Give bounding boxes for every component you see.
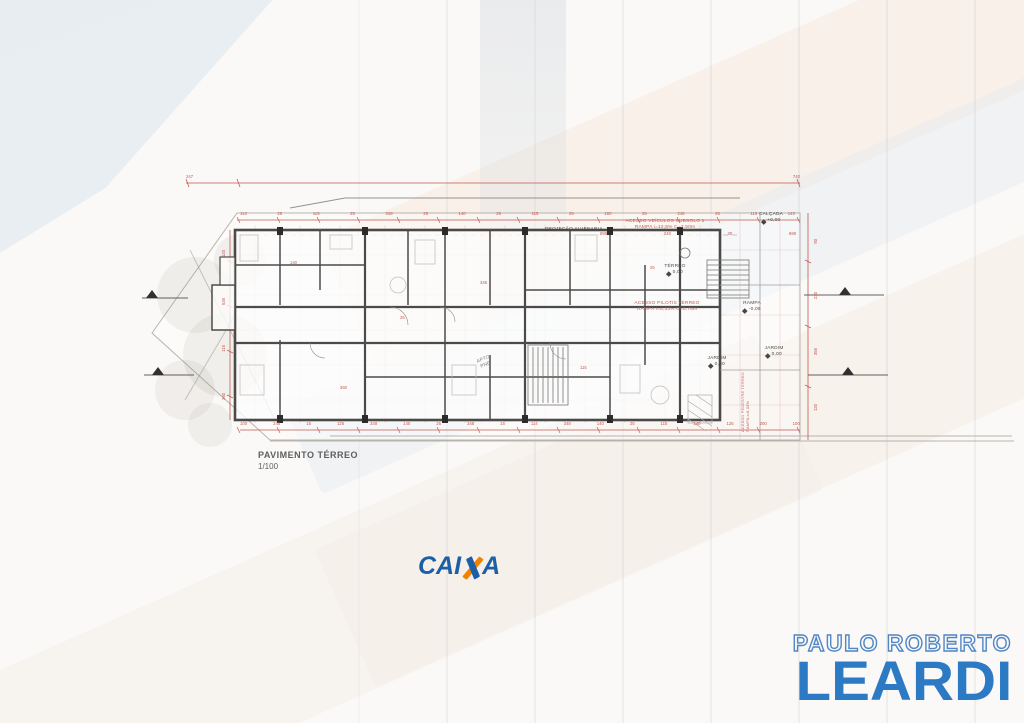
plan-scale: 1/100 [258, 462, 358, 471]
label-calcada: CALÇADA +0,00 [743, 212, 799, 224]
dimension-row-top: 1132511525318251402511525150252482511514… [240, 211, 795, 216]
dimension-value: 120 [221, 250, 226, 257]
level-value: -0,05 [749, 307, 761, 313]
level-diamond-icon [708, 363, 713, 368]
dimension-col-left: 120535115360 [218, 230, 228, 420]
interior-dimension: 348 [480, 280, 487, 285]
dimension-col-right: 90230355120 [810, 215, 820, 435]
dimension-value: 230 [813, 292, 818, 299]
interior-dimension: 115 [580, 365, 587, 370]
dimension-value: 25 [277, 211, 282, 216]
dimension-value: 25 [642, 211, 647, 216]
dimension-value: 247 [186, 174, 193, 179]
level-value: 0,00 [772, 352, 782, 358]
label-line: RAMPA i=8,33% C=0,76m [602, 307, 732, 313]
level-marker: 0,00 [650, 270, 700, 276]
dimension-value: 90 [813, 239, 818, 244]
dimension-value: 360 [221, 393, 226, 400]
dimension-value: 115 [661, 421, 668, 426]
dimension-value: 150 [604, 211, 611, 216]
dimension-value: 100 [793, 421, 800, 426]
dimension-value: 120 [813, 404, 818, 411]
dimension-value: 25 [630, 421, 635, 426]
dimension-value: 535 [221, 298, 226, 305]
level-diamond-icon [765, 353, 770, 358]
dimension-value: 348 [564, 421, 571, 426]
label-acesso-veiculos: ACESSO VEÍCULOS SUBSOLO 1 RAMPA i=12,5% … [580, 219, 750, 231]
dimension-value: 698 [789, 231, 796, 236]
interior-dimension: 360 [340, 385, 347, 390]
dimension-row-overall: 247740 [186, 174, 800, 179]
label-acesso-pilotis: ACESSO PILOTIS TÉRREO RAMPA i=8,33% C=0,… [602, 301, 732, 313]
interior-dimension: 140 [290, 260, 297, 265]
dimension-row-bottom: 1002481512534814025348151143481402511514… [240, 421, 800, 426]
dimension-value: 140 [403, 421, 410, 426]
plan-title-block: PAVIMENTO TÉRREO 1/100 [258, 450, 358, 471]
label-terreo: TÉRREO 0,00 [650, 264, 700, 276]
dimension-value: 318 [385, 211, 392, 216]
dimension-value: 25 [496, 211, 501, 216]
dimension-value: 25 [569, 211, 574, 216]
dimension-value: 348 [370, 421, 377, 426]
leardi-brand: PAULO ROBERTO LEARDI [793, 632, 1012, 707]
level-diamond-icon [761, 219, 766, 224]
floor-plan: 247740 113251152531825140251152515025248… [140, 165, 1020, 485]
level-marker: 0,00 [752, 352, 796, 358]
label-line: RAMPA i=8,33% [745, 370, 750, 432]
dimension-value: 200 [760, 421, 767, 426]
dimension-value: 25 [423, 211, 428, 216]
dimension-value: 248 [664, 231, 671, 236]
caixa-text-left: CAI [418, 552, 461, 581]
interior-dimension: 25 [400, 315, 405, 320]
caixa-logo: CAIA [418, 552, 500, 581]
dimension-value: 113 [240, 211, 247, 216]
leardi-brand-line2: LEARDI [784, 655, 1012, 707]
dimension-value: 15 [306, 421, 311, 426]
label-acesso-pedestre: ACESSO PEDESTRE TÉRREO RAMPA i=8,33% [740, 370, 750, 432]
dimension-value: 125 [337, 421, 344, 426]
level-value: 0,00 [673, 270, 683, 276]
dimension-value: 100 [240, 421, 247, 426]
label-projecao-alvenaria: PROJEÇÃO ALVENARIA [545, 227, 603, 233]
label-line: RAMPA i=12,5% C=3,50m [580, 225, 750, 231]
label-jardim-2: JARDIM 0,00 [752, 346, 796, 358]
dimension-value: 115 [313, 211, 320, 216]
dimension-value: 30 [727, 231, 732, 236]
dimension-value: 15 [500, 421, 505, 426]
dimension-row-upper-right: 89824830698 [600, 231, 796, 236]
level-diamond-icon [743, 308, 748, 313]
plan-title: PAVIMENTO TÉRREO [258, 450, 358, 460]
dimension-value: 248 [677, 211, 684, 216]
caixa-text-right: A [482, 552, 500, 581]
dimension-value: 348 [467, 421, 474, 426]
ramp-edge-line [290, 198, 740, 208]
dimension-value: 740 [793, 174, 800, 179]
dimension-value: 115 [532, 211, 539, 216]
label-jardim-1: JARDIM 0,00 [695, 356, 739, 368]
level-value: +0,00 [767, 218, 780, 224]
level-value: 0,00 [715, 362, 725, 368]
dimension-value: 25 [715, 211, 720, 216]
building-walls [212, 230, 720, 420]
dimension-value: 25 [350, 211, 355, 216]
caixa-x-icon [462, 556, 482, 580]
dimension-value: 114 [531, 421, 538, 426]
dimension-value: 140 [597, 421, 604, 426]
dimension-value: 248 [273, 421, 280, 426]
level-marker: -0,05 [730, 307, 774, 313]
label-rampa: RAMPA -0,05 [730, 301, 774, 313]
dimension-value: 355 [813, 348, 818, 355]
level-marker: +0,00 [743, 218, 799, 224]
dimension-value: 125 [726, 421, 733, 426]
level-marker: 0,00 [695, 362, 739, 368]
level-diamond-icon [666, 271, 671, 276]
dimension-value: 140 [459, 211, 466, 216]
dimension-value: 115 [221, 345, 226, 352]
dimension-value: 25 [436, 421, 441, 426]
dimension-value: 140 [693, 421, 700, 426]
